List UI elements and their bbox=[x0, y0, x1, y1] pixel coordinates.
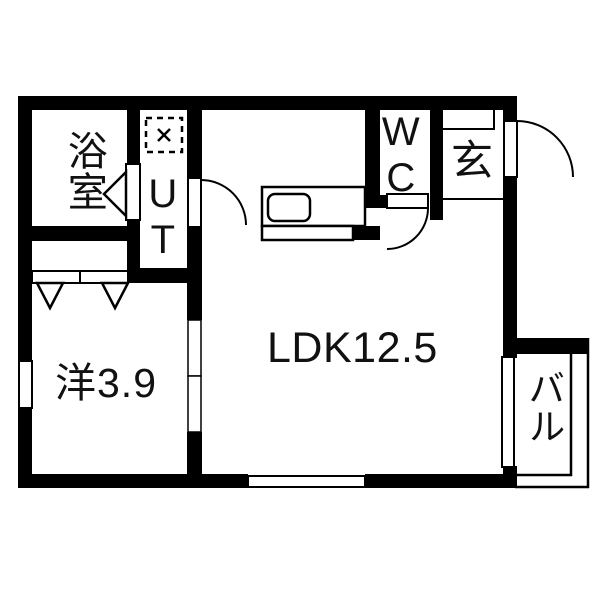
wall-bathroom-divider-upper bbox=[127, 108, 140, 165]
wall-bathroom-bottom bbox=[31, 226, 140, 241]
wall-balcony-top bbox=[515, 338, 589, 354]
sliding-door-panel-lower bbox=[188, 376, 201, 432]
wall-right-top bbox=[503, 96, 517, 123]
entrance-label: 玄 bbox=[451, 140, 494, 183]
washer-space-icon bbox=[146, 118, 182, 152]
wall-wc-right bbox=[430, 96, 443, 220]
closet-folding-door-icon-right bbox=[102, 283, 128, 308]
kitchen-sink bbox=[268, 194, 310, 221]
wall-ldk-west-c bbox=[187, 432, 202, 474]
kitchen-counter-strip bbox=[262, 226, 353, 240]
entry-door-leaf bbox=[504, 121, 517, 177]
ut-door-swing-arc bbox=[201, 180, 246, 225]
bathroom-door-leaf bbox=[126, 164, 140, 220]
window-south-wall bbox=[248, 476, 365, 487]
wall-right-mid bbox=[503, 177, 517, 358]
wall-counter-stub bbox=[353, 226, 380, 240]
ldk-label: LDK12.5 bbox=[267, 327, 438, 371]
wall-left-upper bbox=[18, 96, 32, 362]
wall-bottom-left bbox=[18, 474, 248, 488]
utility-label: UT bbox=[142, 172, 183, 264]
toilet-label: WC bbox=[380, 110, 421, 202]
wc-door-swing-arc bbox=[387, 208, 428, 249]
kitchen-counter bbox=[262, 187, 365, 240]
ut-door-leaf bbox=[188, 178, 201, 227]
wall-corner-block bbox=[503, 466, 517, 488]
bathroom-label: 浴室 bbox=[63, 130, 104, 212]
balcony-label: バル bbox=[524, 369, 562, 445]
floor-plan: 浴室 UT WC 玄 LDK12.5 洋3.9 バル bbox=[0, 0, 600, 600]
closet-folding-door-icon-left bbox=[37, 283, 63, 308]
western-room-label: 洋3.9 bbox=[55, 363, 157, 405]
closet-door-panel-right bbox=[80, 271, 128, 283]
floor-plan-drawing bbox=[0, 0, 600, 600]
closet-door-panel-left bbox=[32, 271, 80, 283]
wall-ut-bottom bbox=[140, 268, 202, 283]
window-balcony-door bbox=[502, 357, 514, 467]
entry-door-swing-arc bbox=[517, 121, 573, 177]
window-west-wall bbox=[19, 361, 32, 408]
wall-ldk-west-a bbox=[187, 108, 202, 178]
bathroom-folding-door-icon bbox=[104, 172, 126, 216]
wall-bottom-right bbox=[365, 474, 503, 488]
wall-wc-left bbox=[365, 108, 380, 208]
sliding-door-panel-upper bbox=[188, 320, 201, 376]
